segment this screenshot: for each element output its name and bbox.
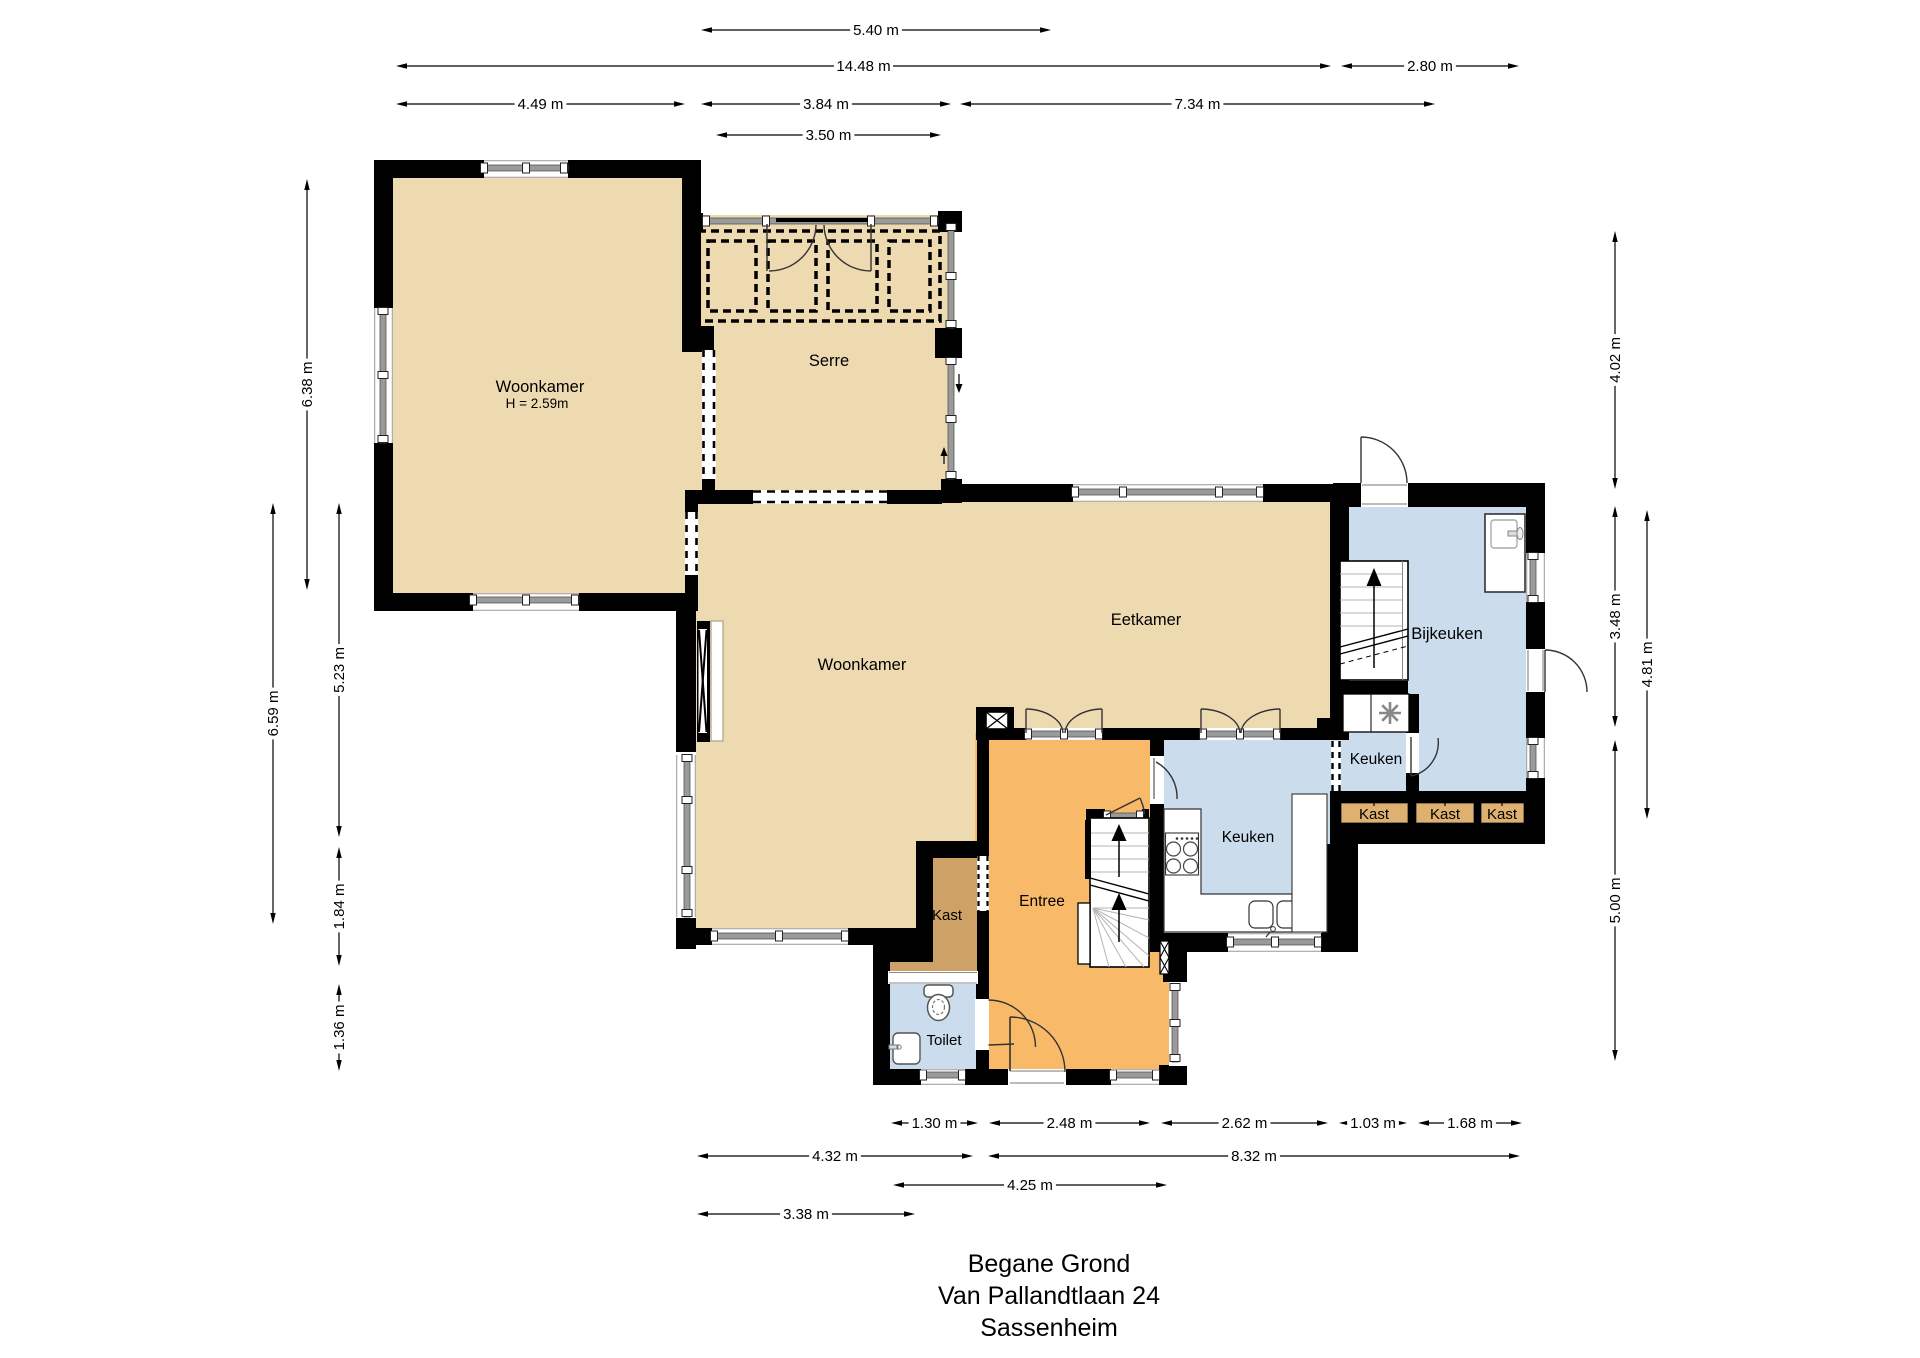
svg-text:1.68 m: 1.68 m bbox=[1447, 1115, 1493, 1132]
svg-text:4.02 m: 4.02 m bbox=[1607, 337, 1624, 383]
svg-text:3.84 m: 3.84 m bbox=[803, 96, 849, 113]
svg-text:3.38 m: 3.38 m bbox=[783, 1206, 829, 1223]
svg-text:H = 2.59m: H = 2.59m bbox=[506, 396, 569, 411]
svg-text:2.80 m: 2.80 m bbox=[1407, 58, 1453, 75]
svg-text:14.48 m: 14.48 m bbox=[836, 58, 890, 75]
svg-text:2.62 m: 2.62 m bbox=[1222, 1115, 1268, 1132]
svg-text:Kast: Kast bbox=[1487, 806, 1518, 823]
svg-text:1.36 m: 1.36 m bbox=[331, 1005, 348, 1051]
svg-text:Van Pallandtlaan 24: Van Pallandtlaan 24 bbox=[938, 1282, 1160, 1310]
svg-text:Woonkamer: Woonkamer bbox=[496, 378, 585, 396]
svg-text:Eetkamer: Eetkamer bbox=[1111, 611, 1182, 629]
svg-text:6.38 m: 6.38 m bbox=[299, 362, 316, 408]
svg-text:Begane Grond: Begane Grond bbox=[968, 1250, 1131, 1278]
svg-text:3.50 m: 3.50 m bbox=[806, 127, 852, 144]
svg-text:Woonkamer: Woonkamer bbox=[818, 656, 907, 674]
svg-text:Keuken: Keuken bbox=[1222, 829, 1275, 846]
svg-text:1.03 m: 1.03 m bbox=[1350, 1115, 1396, 1132]
svg-text:4.32 m: 4.32 m bbox=[812, 1148, 858, 1165]
svg-text:Entree: Entree bbox=[1019, 893, 1065, 910]
svg-text:4.25 m: 4.25 m bbox=[1007, 1177, 1053, 1194]
svg-text:Sassenheim: Sassenheim bbox=[980, 1314, 1118, 1342]
svg-text:Toilet: Toilet bbox=[926, 1032, 962, 1049]
svg-text:5.40 m: 5.40 m bbox=[853, 22, 899, 39]
svg-text:1.84 m: 1.84 m bbox=[331, 884, 348, 930]
svg-text:5.00 m: 5.00 m bbox=[1607, 878, 1624, 924]
svg-text:Kast: Kast bbox=[1430, 806, 1461, 823]
svg-text:4.81 m: 4.81 m bbox=[1639, 642, 1656, 688]
svg-text:7.34 m: 7.34 m bbox=[1175, 96, 1221, 113]
svg-text:8.32 m: 8.32 m bbox=[1231, 1148, 1277, 1165]
svg-text:4.49 m: 4.49 m bbox=[518, 96, 564, 113]
svg-text:3.48 m: 3.48 m bbox=[1607, 594, 1624, 640]
svg-text:Serre: Serre bbox=[809, 352, 849, 370]
svg-text:Kast: Kast bbox=[932, 907, 963, 924]
svg-text:6.59 m: 6.59 m bbox=[265, 691, 282, 737]
svg-text:5.23 m: 5.23 m bbox=[331, 647, 348, 693]
svg-text:Kast: Kast bbox=[1359, 806, 1390, 823]
svg-text:Keuken: Keuken bbox=[1350, 751, 1403, 768]
svg-text:2.48 m: 2.48 m bbox=[1047, 1115, 1093, 1132]
svg-text:Bijkeuken: Bijkeuken bbox=[1411, 625, 1483, 643]
svg-text:1.30 m: 1.30 m bbox=[912, 1115, 958, 1132]
